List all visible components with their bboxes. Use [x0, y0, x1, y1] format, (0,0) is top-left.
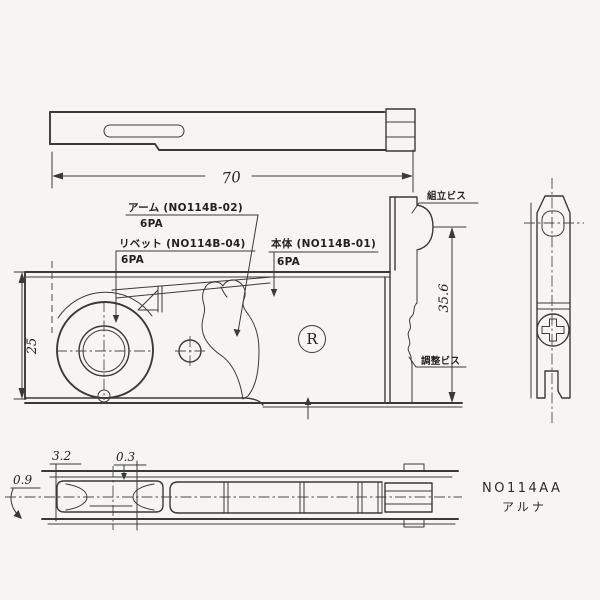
- rivet-label: リベット (NO114B-04): [119, 238, 246, 250]
- screw-end-section: [385, 464, 432, 527]
- arm-label: アーム (NO114B-02): [128, 202, 243, 214]
- drawing-sheet: 70: [0, 0, 600, 600]
- body-qty: 6PA: [277, 256, 301, 268]
- top-view: [50, 109, 415, 151]
- dim-0-3-value: 0.3: [116, 450, 135, 464]
- rail-slot: [104, 125, 184, 137]
- rail-end-cap: [386, 109, 415, 151]
- dim-70-value: 70: [221, 168, 242, 188]
- rivet-hole: [175, 336, 205, 366]
- technical-drawing: 70: [0, 0, 600, 600]
- arm-part: [112, 277, 272, 312]
- registered-mark: R: [299, 326, 326, 353]
- body-label: 本体 (NO114B-01): [271, 237, 376, 250]
- arm-qty: 6PA: [140, 218, 164, 230]
- dimension-edge-thickness: 0.9: [11, 473, 40, 519]
- bottom-section-view: 3.2 0.3 0.9: [5, 449, 462, 530]
- channel-body-section: [170, 482, 382, 513]
- latch-cam: [202, 280, 259, 399]
- phillips-screw: [537, 314, 569, 346]
- roller-wheel: [56, 292, 153, 402]
- dim-0-9-value: 0.9: [13, 473, 32, 487]
- part-labels: アーム (NO114B-02) 6PA リベット (NO114B-04) 6PA…: [113, 190, 478, 367]
- dim-3-2-value: 3.2: [52, 449, 71, 463]
- dim-25-value: 25: [25, 338, 40, 356]
- dimension-overall-height: 25: [14, 272, 40, 399]
- dim-35-6-value: 35.6: [437, 284, 452, 313]
- registered-mark-letter: R: [306, 330, 318, 348]
- assembly-screw-label: 組立ビス: [427, 190, 466, 202]
- front-view: R: [25, 197, 462, 419]
- title-block: NO114AA アルナ: [482, 481, 562, 514]
- assembly-screw-head: [417, 205, 433, 250]
- adjustment-screw-label: 調整ビス: [421, 355, 460, 367]
- dimension-plate-thickness: 3.2: [50, 449, 81, 521]
- mounting-slot: [542, 211, 564, 236]
- adjustment-screw-profile: [408, 303, 417, 403]
- mounting-bracket: [385, 197, 433, 403]
- brand-name: アルナ: [502, 500, 547, 514]
- reference-tick: [305, 397, 311, 419]
- dimension-bracket-height: 35.6: [433, 227, 466, 403]
- roller-housing-section: [57, 481, 163, 512]
- dimension-overall-length: 70: [52, 150, 413, 192]
- side-view: [524, 178, 584, 425]
- model-number: NO114AA: [482, 481, 562, 496]
- rivet-qty: 6PA: [121, 254, 145, 266]
- dimension-gap: 0.3: [114, 450, 146, 530]
